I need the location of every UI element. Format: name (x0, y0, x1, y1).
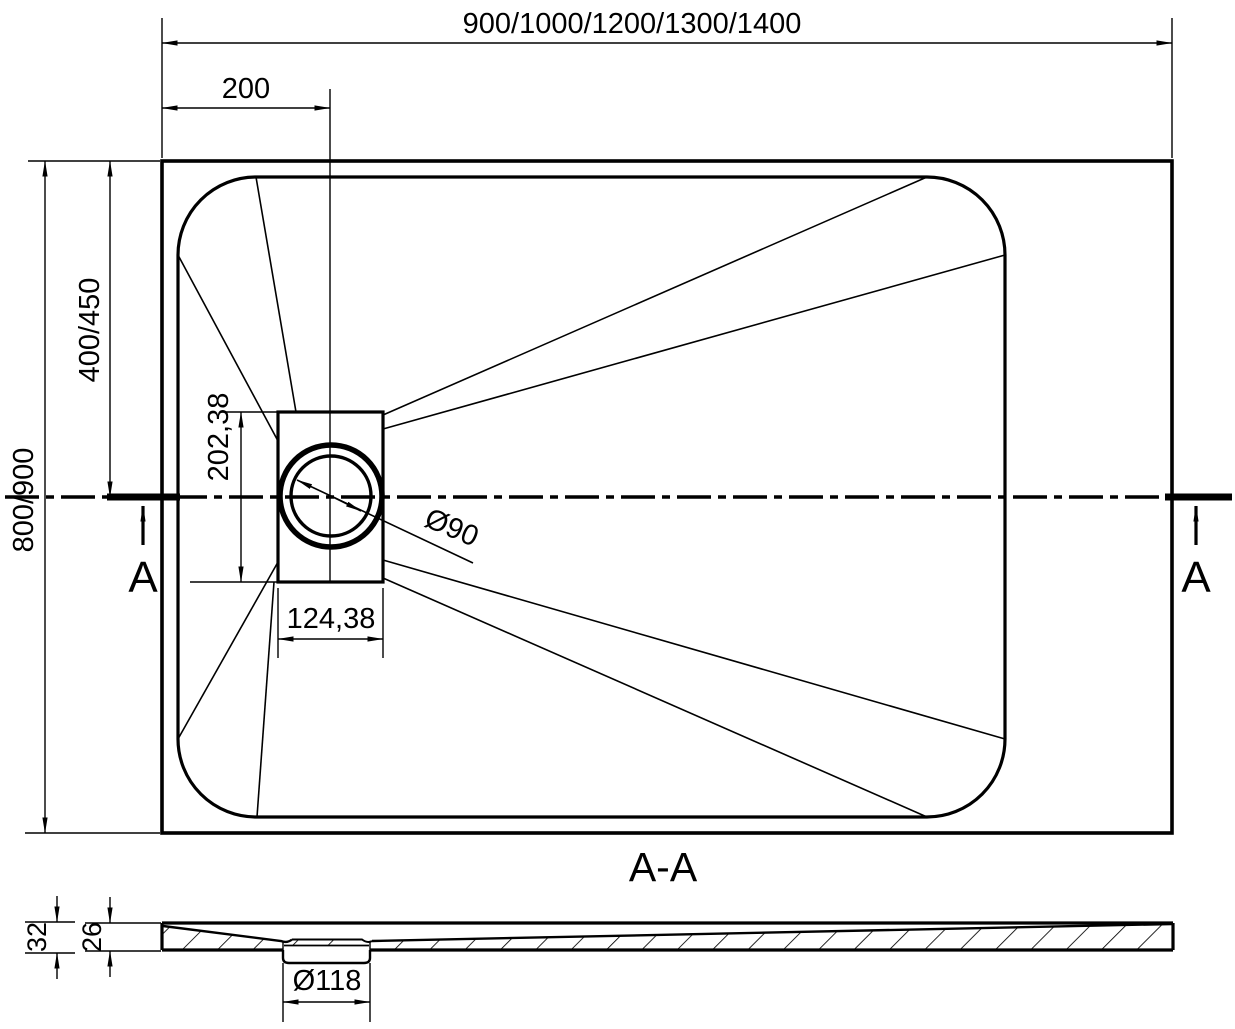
dim-text-recess-width: 124,38 (287, 603, 376, 635)
drawing-sheet: A A 900/1000/1200/1300/1400 200 800/900 … (0, 0, 1235, 1029)
dim-text-waste-hole: Ø118 (293, 965, 362, 997)
plan-dimensions: 900/1000/1200/1300/1400 200 800/900 400/… (8, 8, 1172, 833)
shower-tray-technical-drawing: A A 900/1000/1200/1300/1400 200 800/900 … (0, 0, 1235, 1029)
dim-text-inner-height: 26 (77, 922, 107, 952)
dim-text-total-height: 32 (22, 922, 52, 952)
dim-text-drain-offset-x: 200 (222, 73, 270, 105)
section-marker-left: A (128, 553, 158, 602)
section-marker-right: A (1181, 553, 1211, 602)
section-title: A-A (629, 844, 698, 890)
drain-boss-outline (283, 950, 370, 963)
dim-text-drain-diameter: Ø90 (420, 502, 483, 553)
dim-text-overall-width: 900/1000/1200/1300/1400 (463, 8, 802, 40)
section-view: 32 26 Ø118 (22, 896, 1173, 1022)
dim-text-drain-offset-y: 400/450 (74, 278, 106, 383)
dim-text-recess-height: 202,38 (203, 393, 235, 482)
dim-text-overall-depth: 800/900 (8, 448, 40, 553)
plan-view: A A (5, 89, 1232, 833)
